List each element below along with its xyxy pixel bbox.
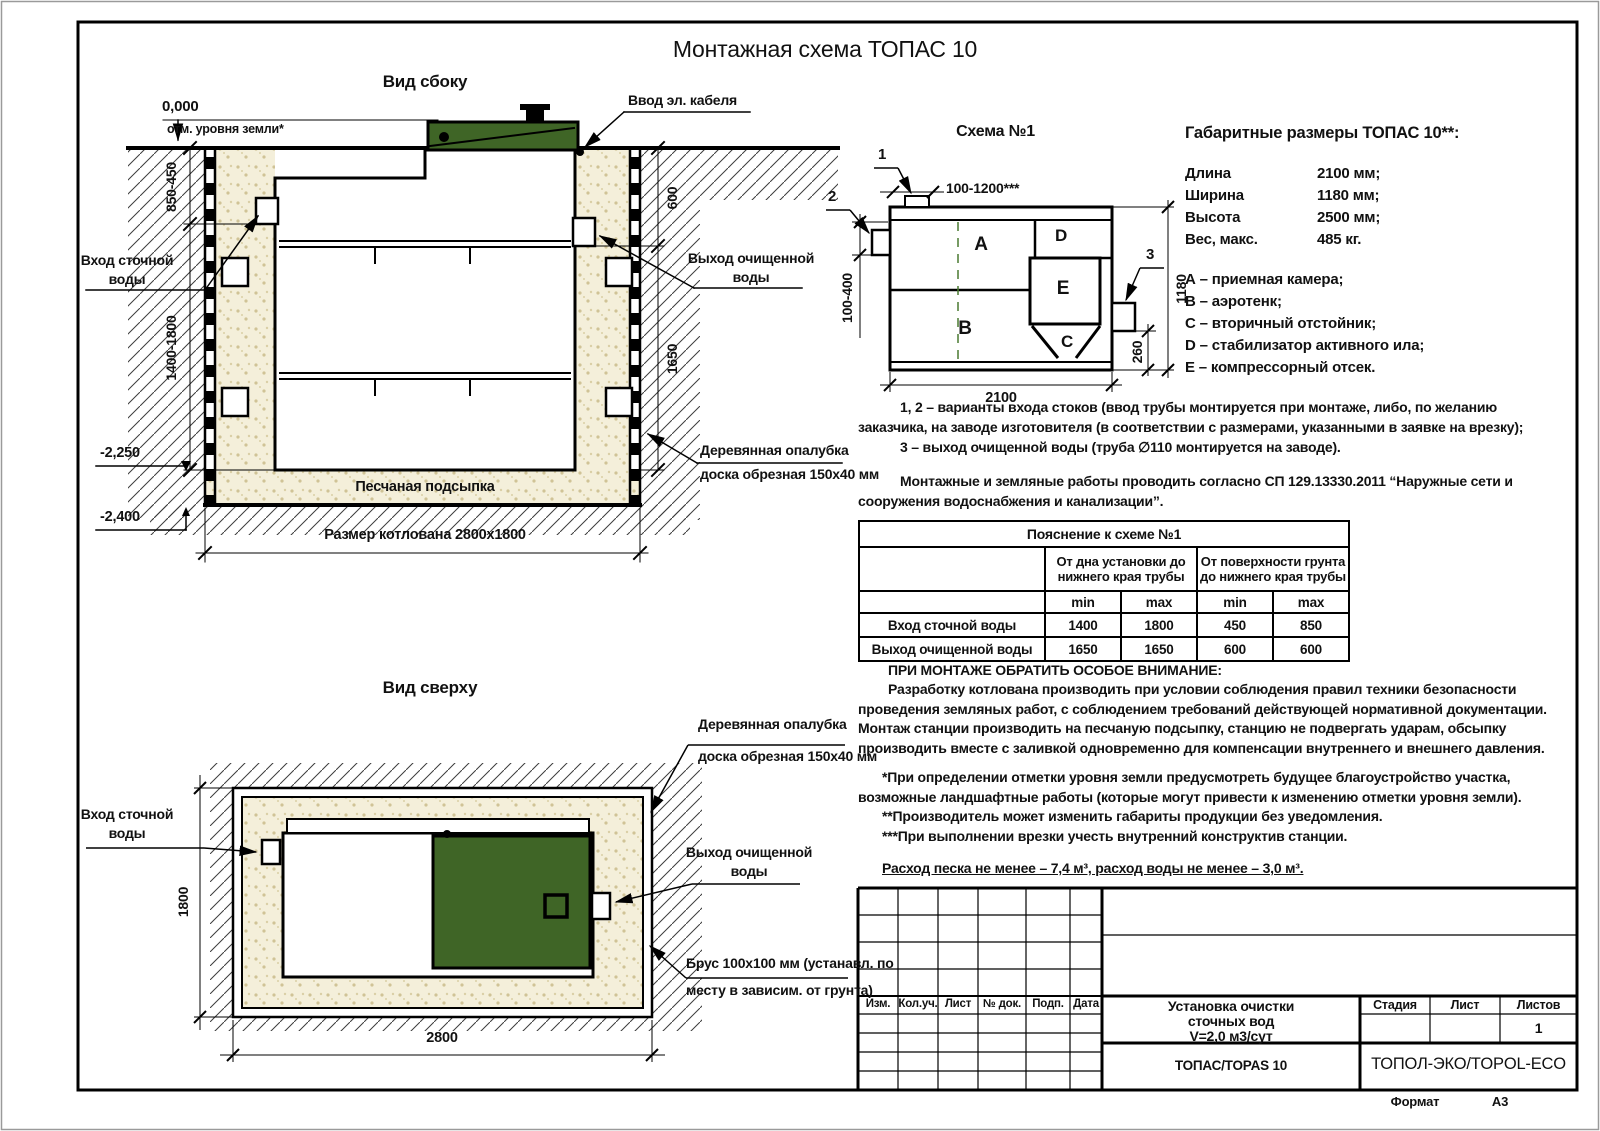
spec-row: Высота2500 мм;: [1185, 207, 1585, 229]
compartment-e: E: [1048, 278, 1078, 300]
compartment-c: C: [1052, 332, 1082, 352]
top-view-title: Вид сверху: [335, 678, 525, 698]
side-view-title: Вид сбоку: [335, 72, 515, 92]
inlet-label-sv: Вход сточной: [62, 252, 192, 268]
stamp-sheet-header: Лист: [1430, 998, 1500, 1012]
legend-item: Е – компрессорный отсек.: [1185, 357, 1585, 379]
legend-item: С – вторичный отстойник;: [1185, 313, 1585, 335]
table-row: Вход сточной воды 1400 1800 450 850: [859, 613, 1349, 637]
schema-linework: [826, 168, 1174, 392]
dim-600: 600: [664, 187, 680, 210]
beam-label-2: месту в зависим. от грунта): [686, 982, 873, 998]
elevation-2250-label: -2,250: [100, 445, 140, 461]
explanation-table: Пояснение к схеме №1 От дна установки до…: [858, 520, 1350, 662]
schema-callout-1: 1: [878, 146, 886, 163]
stamp-doc-title-3: V=2,0 м3/сут: [1102, 1028, 1360, 1044]
stamp-product: ТОПАС/TOPAS 10: [1102, 1058, 1360, 1073]
inlet-label-tv-2: воды: [62, 825, 192, 841]
beam-label: Брус 100x100 мм (устанавл. по: [686, 955, 894, 971]
compartment-a: A: [966, 234, 996, 256]
attention-note-3: ***При выполнении врезки учесть внутренн…: [858, 827, 1556, 847]
stamp-col-podp: Подп.: [1026, 998, 1070, 1010]
dim-1400-1800: 1400-1800: [163, 315, 179, 380]
table-title: Пояснение к схеме №1: [859, 521, 1349, 547]
table-min-header: min: [1045, 591, 1121, 613]
stamp-sheets-value: 1: [1500, 1020, 1577, 1036]
formwork-label-sv: Деревянная опалубка: [700, 442, 849, 458]
attention-heading: ПРИ МОНТАЖЕ ОБРАТИТЬ ОСОБОЕ ВНИМАНИЕ:: [858, 660, 1556, 680]
inlet-label-sv-2: воды: [62, 271, 192, 287]
page-title: Монтажная схема ТОПАС 10: [560, 36, 1090, 63]
elevation-2400-label: -2,400: [100, 509, 140, 525]
inlet-label-tv: Вход сточной: [62, 806, 192, 822]
stamp-col-ndok: № док.: [978, 998, 1026, 1010]
dim-2800: 2800: [382, 1030, 502, 1046]
ground-level-label: отм. уровня земли*: [167, 122, 284, 136]
compartment-d: D: [1046, 226, 1076, 246]
drawing-sheet: Монтажная схема ТОПАС 10 Вид сбоку 0,000…: [0, 0, 1600, 1131]
table-row: Выход очищенной воды 1650 1650 600 600: [859, 637, 1349, 661]
top-view-linework: [86, 745, 848, 1062]
spec-row: Длина2100 мм;: [1185, 163, 1585, 185]
schema-dim-260: 260: [1129, 341, 1145, 364]
zero-elevation-label: 0,000: [162, 98, 199, 115]
dim-1800: 1800: [175, 887, 191, 917]
attention-note-2: **Производитель может изменить габариты …: [858, 807, 1556, 827]
format-label: Формат: [1380, 1094, 1450, 1109]
specs-block: Габаритные размеры ТОПАС 10**: Длина2100…: [1185, 124, 1585, 379]
schema-title: Схема №1: [928, 123, 1063, 141]
formwork-label-tv: Деревянная опалубка: [698, 716, 847, 732]
formwork-label-tv-2: доска обрезная 150x40 мм: [698, 748, 877, 764]
notes-block: 1, 2 – варианты входа стоков (ввод трубы…: [858, 397, 1556, 511]
note-variants: 1, 2 – варианты входа стоков (ввод трубы…: [858, 397, 1556, 437]
legend-item: А – приемная камера;: [1185, 269, 1585, 291]
outlet-label-tv-2: воды: [684, 863, 814, 879]
schema-callout-3: 3: [1146, 246, 1154, 263]
schema-dim-left: 100-400: [839, 273, 855, 323]
legend-item: D – стабилизатор активного ила;: [1185, 335, 1585, 357]
dim-1650: 1650: [664, 344, 680, 374]
stamp-company: ТОПОЛ-ЭКО/TOPOL-ECO: [1362, 1055, 1575, 1074]
schema-dim-top: 100-1200***: [946, 180, 1019, 196]
dim-850-450: 850-450: [163, 162, 179, 212]
spec-row: Вес, макс.485 кг.: [1185, 229, 1585, 251]
stamp-col-data: Дата: [1066, 998, 1106, 1010]
consumption-note: Расход песка не менее – 7,4 м³, расход в…: [858, 858, 1556, 878]
table-group-2: От поверхности грунта до нижнего края тр…: [1197, 547, 1349, 591]
table-max-header: max: [1121, 591, 1197, 613]
sand-bedding-label: Песчаная подсыпка: [330, 479, 520, 495]
outlet-label-tv: Выход очищенной: [684, 844, 814, 860]
note-sp: Монтажные и земляные работы проводить со…: [858, 471, 1556, 511]
compartment-legend: А – приемная камера; В – аэротенк; С – в…: [1185, 269, 1585, 379]
attention-note-1: *При определении отметки уровня земли пр…: [858, 768, 1556, 807]
table-min-header: min: [1197, 591, 1273, 613]
note-outlet: 3 – выход очищенной воды (труба ∅110 мон…: [858, 437, 1556, 457]
spec-row: Ширина1180 мм;: [1185, 185, 1585, 207]
stamp-doc-title-1: Установка очистки: [1102, 998, 1360, 1014]
outlet-label-sv: Выход очищенной: [686, 250, 816, 266]
specs-heading: Габаритные размеры ТОПАС 10**:: [1185, 124, 1585, 143]
stamp-col-koluch: Кол.уч.: [898, 998, 938, 1010]
stamp-sheets-header: Листов: [1500, 998, 1577, 1012]
schema-callout-2: 2: [828, 188, 836, 205]
cable-entry-label: Ввод эл. кабеля: [628, 92, 737, 108]
attention-body: Разработку котлована производить при усл…: [858, 680, 1556, 758]
stamp-doc-title-2: сточных вод: [1102, 1013, 1360, 1029]
compartment-b: B: [950, 318, 980, 340]
outlet-label-sv-2: воды: [686, 269, 816, 285]
table-group-1: От дна установки до нижнего края трубы: [1045, 547, 1197, 591]
format-value: А3: [1470, 1094, 1530, 1109]
legend-item: В – аэротенк;: [1185, 291, 1585, 313]
stamp-col-izm: Изм.: [858, 998, 898, 1010]
attention-block: ПРИ МОНТАЖЕ ОБРАТИТЬ ОСОБОЕ ВНИМАНИЕ: Ра…: [858, 660, 1556, 878]
formwork-label-sv-2: доска обрезная 150x40 мм: [700, 466, 879, 482]
stamp-stage-header: Стадия: [1360, 998, 1430, 1012]
pit-size-label: Размер котлована 2800x1800: [285, 527, 565, 543]
stamp-col-list: Лист: [938, 998, 978, 1010]
table-max-header: max: [1273, 591, 1349, 613]
